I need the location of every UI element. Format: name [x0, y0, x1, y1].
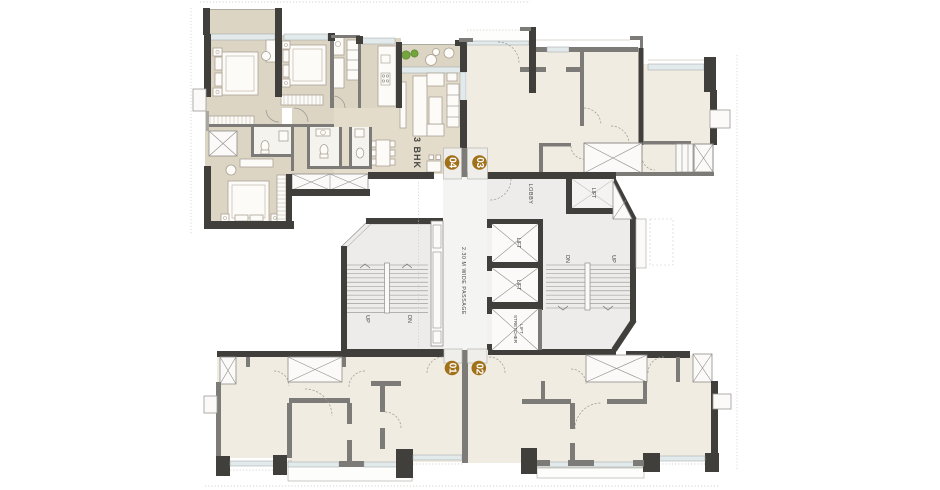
svg-text:3 BHK: 3 BHK: [412, 137, 422, 169]
svg-text:2.30 M WIDE PASSAGE: 2.30 M WIDE PASSAGE: [460, 247, 466, 315]
svg-text:STRETCHER: STRETCHER: [513, 315, 518, 344]
svg-text:DN: DN: [406, 315, 412, 323]
svg-text:02: 02: [473, 363, 484, 374]
svg-text:LIFT: LIFT: [515, 238, 521, 248]
svg-text:UP: UP: [610, 255, 616, 263]
svg-text:LIFT: LIFT: [519, 324, 524, 334]
svg-text:LIFT: LIFT: [515, 280, 521, 290]
svg-text:DN: DN: [564, 255, 570, 263]
svg-text:LIFT: LIFT: [590, 188, 596, 198]
svg-text:04: 04: [447, 157, 458, 168]
svg-text:LOBBY: LOBBY: [527, 184, 533, 205]
svg-text:03: 03: [474, 157, 485, 168]
svg-text:01: 01: [447, 363, 458, 374]
svg-text:UP: UP: [364, 315, 370, 323]
